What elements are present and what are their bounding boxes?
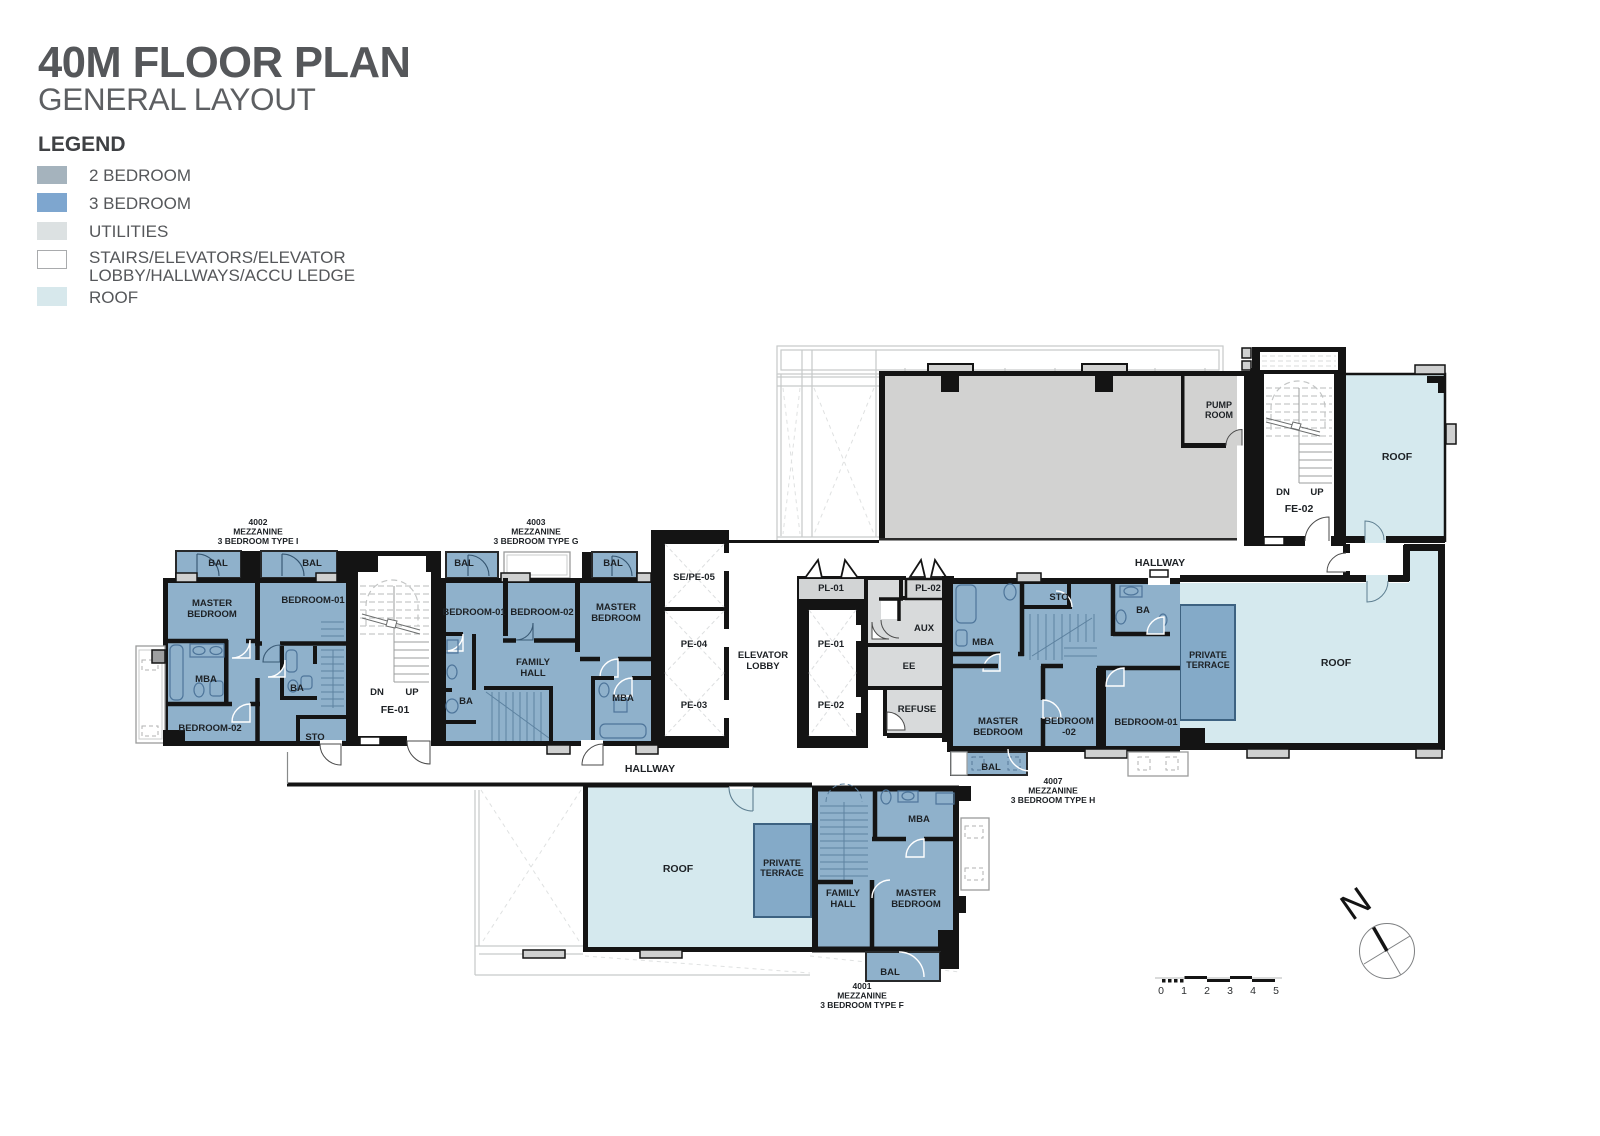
svg-text:HALL: HALL — [830, 899, 856, 910]
svg-text:ROOF: ROOF — [89, 288, 138, 307]
svg-text:BAL: BAL — [302, 558, 322, 569]
svg-text:HALLWAY: HALLWAY — [1135, 557, 1185, 569]
svg-text:MBA: MBA — [612, 693, 634, 704]
svg-text:EE: EE — [903, 661, 916, 672]
svg-text:HALL: HALL — [520, 668, 546, 679]
svg-text:UTILITIES: UTILITIES — [89, 222, 168, 241]
svg-text:STO: STO — [1049, 592, 1068, 603]
svg-text:BA: BA — [1136, 605, 1150, 616]
svg-text:ROOF: ROOF — [1321, 657, 1352, 669]
svg-text:4: 4 — [1250, 985, 1256, 997]
svg-text:BEDROOM: BEDROOM — [973, 727, 1023, 738]
svg-text:BA: BA — [459, 696, 473, 707]
svg-text:SE/PE-05: SE/PE-05 — [673, 572, 715, 583]
svg-text:MASTER: MASTER — [896, 888, 936, 899]
svg-text:3 BEDROOM TYPE I: 3 BEDROOM TYPE I — [218, 536, 299, 546]
svg-text:TERRACE: TERRACE — [760, 868, 804, 878]
svg-text:HALLWAY: HALLWAY — [625, 763, 675, 775]
svg-text:BEDROOM-01: BEDROOM-01 — [442, 607, 506, 618]
svg-text:ELEVATOR: ELEVATOR — [738, 650, 788, 661]
svg-text:ROOM: ROOM — [1205, 410, 1233, 420]
svg-text:BEDROOM-02: BEDROOM-02 — [510, 607, 573, 618]
svg-text:4003: 4003 — [527, 517, 546, 527]
svg-text:BA: BA — [290, 683, 304, 694]
svg-text:BEDROOM: BEDROOM — [591, 613, 641, 624]
svg-text:STAIRS/ELEVATORS/ELEVATOR: STAIRS/ELEVATORS/ELEVATOR — [89, 248, 346, 267]
svg-text:BAL: BAL — [208, 558, 228, 569]
svg-text:3 BEDROOM TYPE G: 3 BEDROOM TYPE G — [493, 536, 578, 546]
svg-text:AUX: AUX — [914, 623, 935, 634]
svg-text:LOBBY/HALLWAYS/ACCU LEDGE: LOBBY/HALLWAYS/ACCU LEDGE — [89, 266, 355, 285]
svg-text:BAL: BAL — [454, 558, 474, 569]
svg-text:BEDROOM: BEDROOM — [1044, 716, 1094, 727]
svg-text:BEDROOM-02: BEDROOM-02 — [178, 723, 241, 734]
svg-text:2: 2 — [1204, 985, 1210, 997]
svg-text:2 BEDROOM: 2 BEDROOM — [89, 166, 191, 185]
svg-text:PRIVATE: PRIVATE — [763, 858, 801, 868]
svg-text:PE-02: PE-02 — [818, 700, 844, 711]
svg-text:MEZZANINE: MEZZANINE — [233, 527, 283, 537]
svg-text:MEZZANINE: MEZZANINE — [1028, 786, 1078, 796]
svg-text:UP: UP — [405, 687, 419, 698]
svg-text:ROOF: ROOF — [1382, 451, 1413, 463]
svg-text:4002: 4002 — [249, 517, 268, 527]
svg-text:BEDROOM: BEDROOM — [187, 609, 237, 620]
svg-text:FE-02: FE-02 — [1285, 503, 1314, 515]
svg-text:DN: DN — [370, 687, 384, 698]
svg-text:BEDROOM-01: BEDROOM-01 — [281, 595, 345, 606]
svg-text:0: 0 — [1158, 985, 1164, 997]
svg-text:MBA: MBA — [195, 674, 217, 685]
svg-text:BAL: BAL — [880, 967, 900, 978]
svg-text:FAMILY: FAMILY — [826, 888, 861, 899]
svg-text:MBA: MBA — [908, 814, 930, 825]
svg-text:3 BEDROOM TYPE F: 3 BEDROOM TYPE F — [820, 1000, 904, 1010]
svg-text:PL-01: PL-01 — [818, 583, 845, 594]
svg-text:MASTER: MASTER — [978, 716, 1018, 727]
svg-text:BAL: BAL — [603, 558, 623, 569]
svg-text:4007: 4007 — [1044, 776, 1063, 786]
svg-text:3: 3 — [1227, 985, 1233, 997]
svg-text:FE-01: FE-01 — [381, 704, 410, 716]
svg-text:3 BEDROOM: 3 BEDROOM — [89, 194, 191, 213]
svg-text:MASTER: MASTER — [192, 598, 232, 609]
svg-text:BEDROOM-01: BEDROOM-01 — [1114, 717, 1178, 728]
svg-text:5: 5 — [1273, 985, 1279, 997]
svg-text:1: 1 — [1181, 985, 1187, 997]
svg-text:LOBBY: LOBBY — [746, 661, 780, 672]
svg-text:TERRACE: TERRACE — [1186, 660, 1230, 670]
svg-text:PRIVATE: PRIVATE — [1189, 650, 1227, 660]
svg-text:-02: -02 — [1062, 727, 1076, 738]
svg-text:4001: 4001 — [853, 981, 872, 991]
svg-text:PUMP: PUMP — [1206, 400, 1232, 410]
svg-text:GENERAL LAYOUT: GENERAL LAYOUT — [38, 81, 316, 117]
svg-text:MASTER: MASTER — [596, 602, 636, 613]
svg-text:40M FLOOR PLAN: 40M FLOOR PLAN — [38, 39, 410, 87]
svg-text:BAL: BAL — [981, 762, 1001, 773]
svg-text:PE-03: PE-03 — [681, 700, 707, 711]
svg-text:PE-01: PE-01 — [818, 639, 845, 650]
svg-text:MBA: MBA — [972, 637, 994, 648]
svg-text:BEDROOM: BEDROOM — [891, 899, 941, 910]
svg-text:REFUSE: REFUSE — [898, 704, 937, 715]
svg-text:DN: DN — [1276, 487, 1290, 498]
svg-text:MEZZANINE: MEZZANINE — [511, 527, 561, 537]
svg-text:UP: UP — [1310, 487, 1324, 498]
svg-text:ROOF: ROOF — [663, 863, 694, 875]
svg-text:PL-02: PL-02 — [915, 583, 941, 594]
svg-text:MEZZANINE: MEZZANINE — [837, 991, 887, 1001]
svg-text:LEGEND: LEGEND — [38, 133, 126, 156]
svg-text:3 BEDROOM TYPE H: 3 BEDROOM TYPE H — [1011, 795, 1096, 805]
svg-text:STO: STO — [305, 732, 324, 743]
svg-text:PE-04: PE-04 — [681, 639, 708, 650]
svg-text:FAMILY: FAMILY — [516, 657, 551, 668]
